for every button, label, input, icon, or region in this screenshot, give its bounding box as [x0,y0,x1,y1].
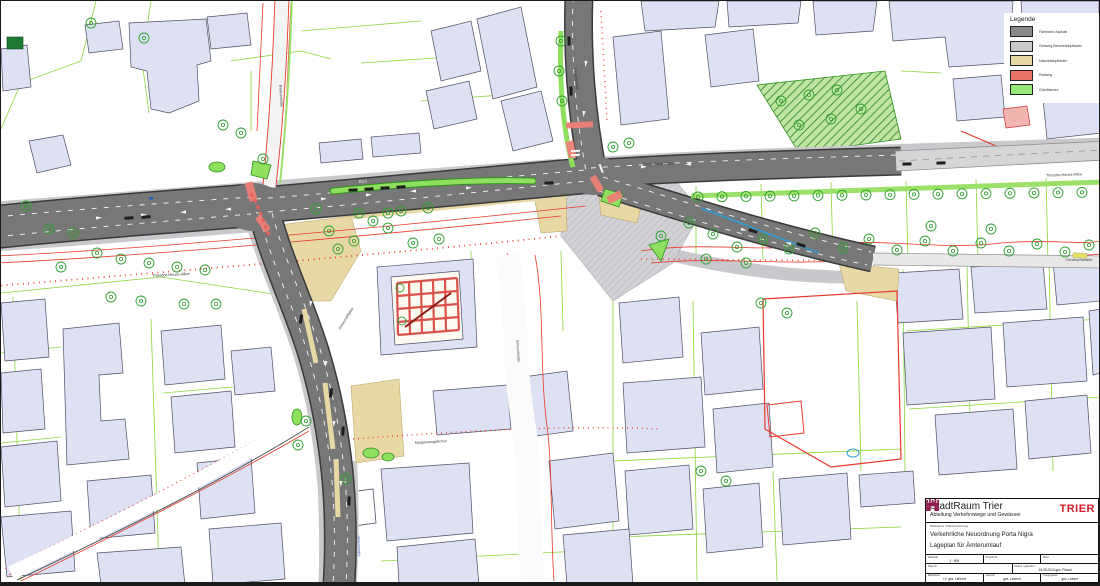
project-title: Verkehrliche Neuordnung Porta Nigra [930,531,1094,538]
legend-label: Radweg [1039,73,1052,77]
street-label: Simeonstraße [357,535,362,556]
title-block-cell: Datum / geändert15.08.2024 gez. Flesch [1013,564,1099,572]
legend-swatch [1010,26,1033,37]
legend-swatch [1010,84,1033,95]
title-block-cell: Freigegebengez. Lesser [1041,574,1098,582]
org-name: StadtRaum Trier [930,501,1021,512]
street-label: Porta-Nigra-Platz [643,160,674,166]
porta-nigra-logo-icon [926,499,941,511]
legend-swatch [1010,55,1033,66]
legend-item: Grünflächen [1010,84,1099,95]
title-block-table: Maßstab1 : 500Projekt-Nr.BlattPlan-Nr.Da… [926,555,1098,582]
section-label: Maßnahme / Planbezeichnung [930,524,1094,528]
title-block-cell: Maßstab1 : 500 [926,555,984,563]
legend-swatch [1010,41,1033,52]
street-label: Christophstraße [1065,258,1092,262]
legend-swatch [1010,70,1033,81]
title-block-cell: Blatt [1041,555,1098,563]
title-block-cell: Plan-Nr. [926,564,1013,572]
legend-label: Natursteinpflaster [1039,59,1067,63]
bus-lane-marking: BUS [359,178,368,184]
street-label: Simeonstiftplatz [338,306,355,330]
legend-label: Gehweg Betonsteinpflaster [1039,44,1082,48]
legend-item: Gehweg Betonsteinpflaster [1010,41,1099,52]
street-label: Theodor-Heuss-Allee [1046,172,1082,177]
porta-nigra-monument [391,271,463,345]
legend: Legende Fahrbahn AsphaltGehweg Betonstei… [1004,13,1099,103]
title-block-cell: Geprüftgez. Lehnert [984,574,1042,582]
legend-title: Legende [1010,16,1099,23]
green-building [7,37,23,49]
red-hatched-building [1003,106,1030,128]
title-block-cell: Bearbeiteti.V. gez. Lehnert [926,574,984,582]
park-hatched [757,71,901,153]
street-label: Margaretengäßchen [415,439,448,445]
logo-text: TRIER [1060,503,1096,515]
site-plan-page: Theodor-Heuss-AlleeTheodor-Heuss-AlleeCh… [0,0,1100,586]
trier-logo: TRIER [1060,503,1096,515]
legend-item: Radweg [1010,70,1099,81]
legend-label: Fahrbahn Asphalt [1039,30,1067,34]
legend-item: Fahrbahn Asphalt [1010,26,1099,37]
legend-item: Natursteinpflaster [1010,55,1099,66]
street-label: Theodor-Heuss-Allee [152,271,191,278]
org-department: Abteilung Verkehrswege und Gewässer [930,512,1021,518]
title-block-cell: Projekt-Nr. [984,555,1042,563]
legend-label: Grünflächen [1039,88,1059,92]
plan-title: Lageplan für Ämterumlauf [930,542,1094,549]
title-block: StadtRaum Trier Abteilung Verkehrswege u… [925,498,1099,583]
